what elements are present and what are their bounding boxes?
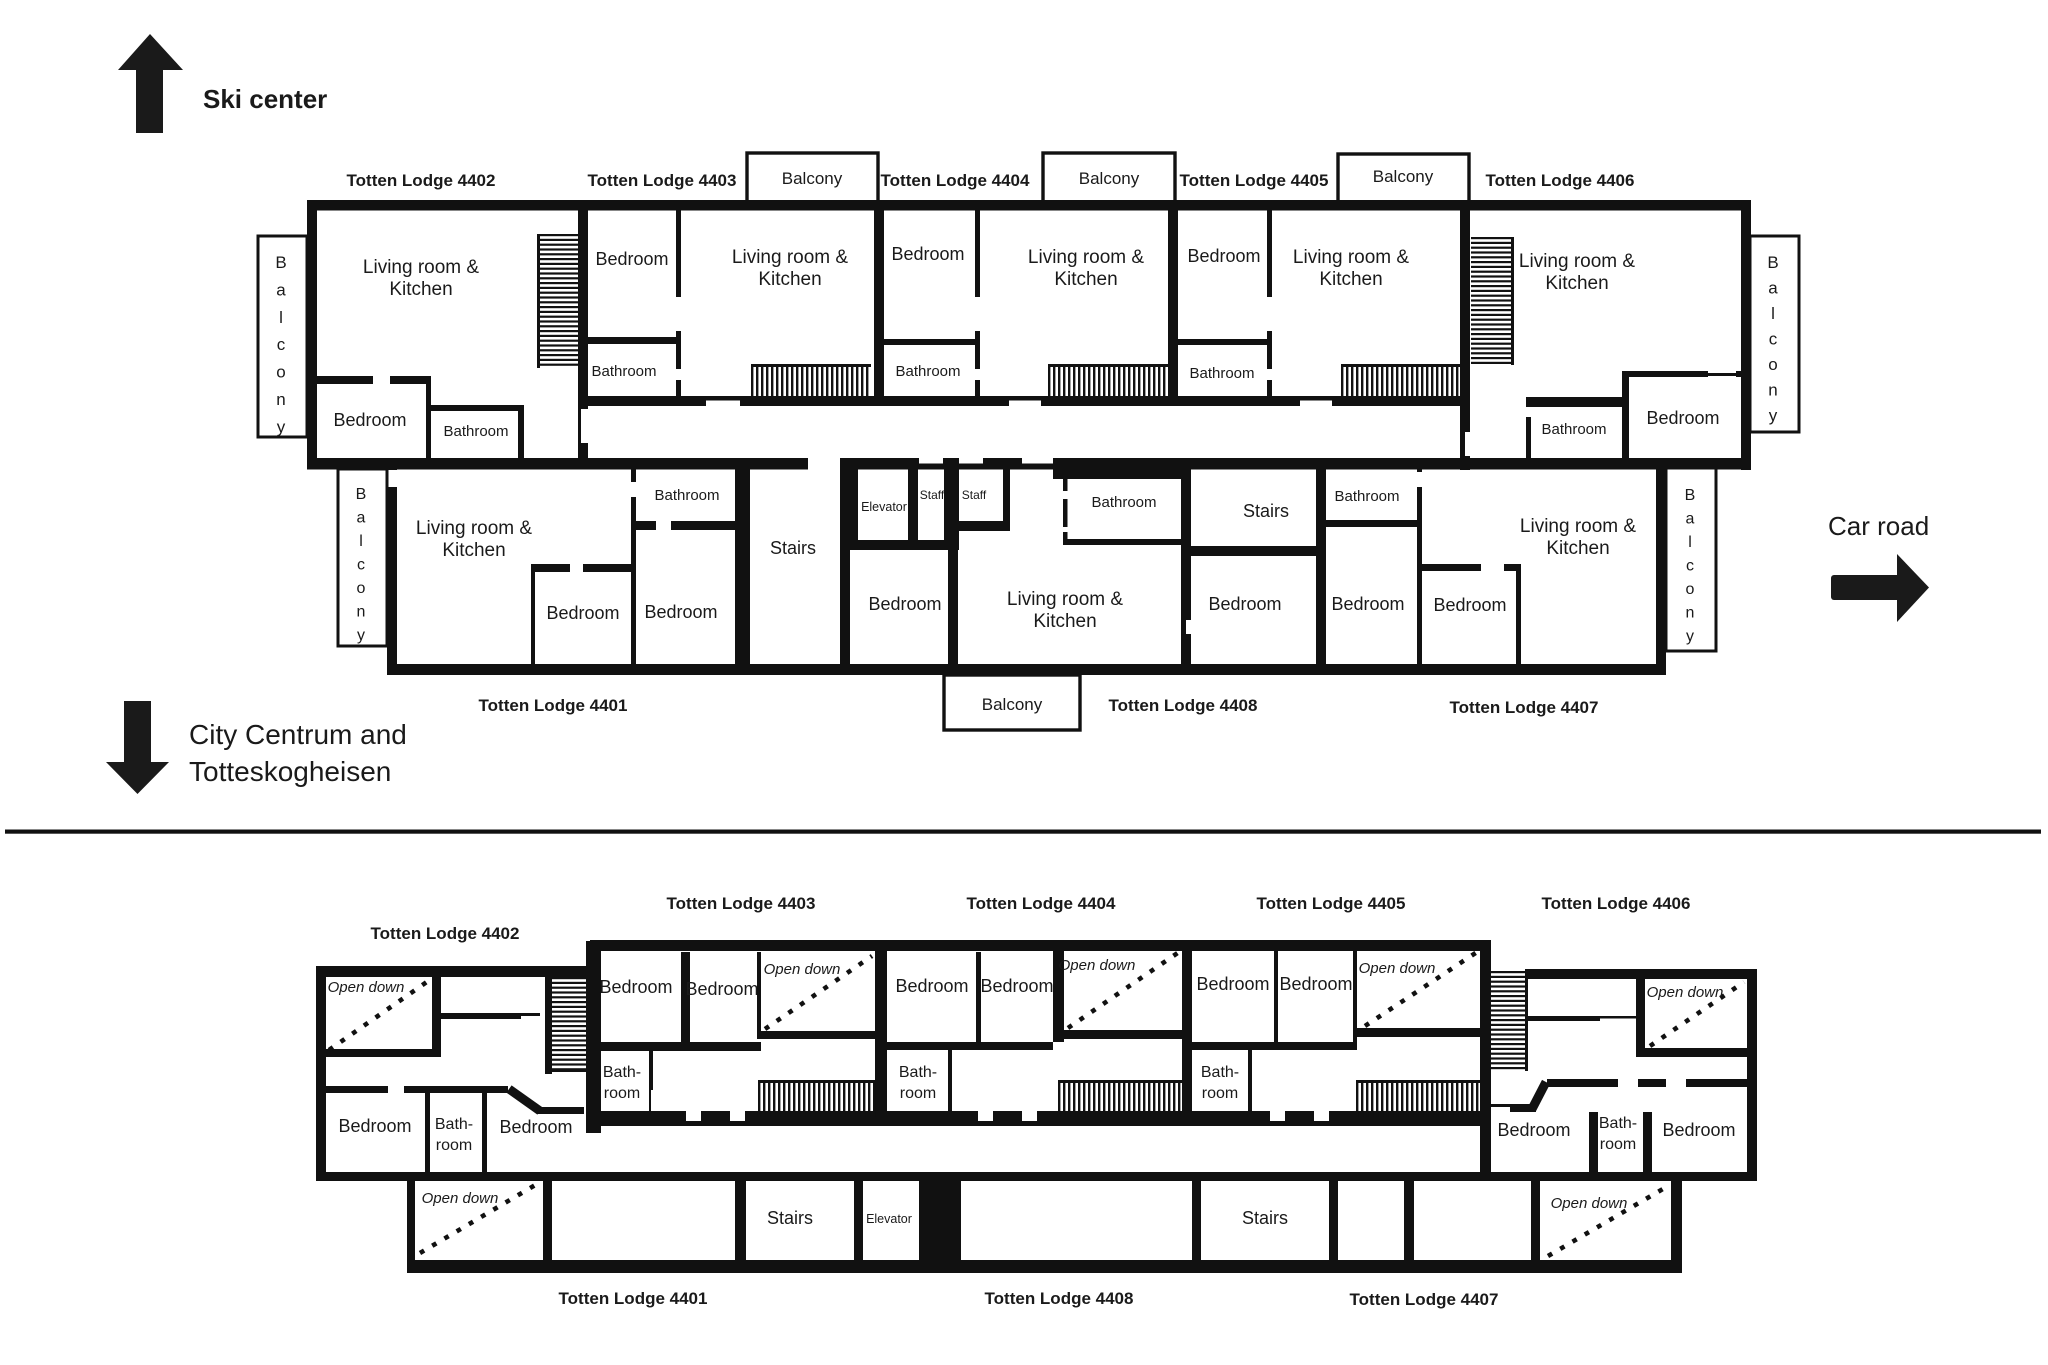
svg-text:Open down: Open down — [1551, 1195, 1628, 1212]
svg-text:o: o — [357, 580, 366, 597]
svg-text:n: n — [276, 390, 285, 409]
svg-text:n: n — [357, 604, 366, 621]
svg-text:Bedroom: Bedroom — [1208, 594, 1281, 614]
svg-text:B: B — [1767, 253, 1778, 272]
svg-text:Bath-: Bath- — [603, 1064, 641, 1081]
svg-text:y: y — [357, 627, 365, 644]
svg-text:Totten Lodge 4408: Totten Lodge 4408 — [985, 1289, 1134, 1308]
svg-text:Kitchen: Kitchen — [1545, 273, 1608, 294]
svg-text:Bedroom: Bedroom — [1646, 408, 1719, 428]
svg-text:Bathroom: Bathroom — [1189, 365, 1254, 382]
svg-text:Totten Lodge 4404: Totten Lodge 4404 — [967, 894, 1116, 913]
svg-text:Bedroom: Bedroom — [338, 1116, 411, 1136]
svg-text:y: y — [1686, 628, 1694, 645]
svg-text:B: B — [1685, 487, 1696, 504]
svg-text:Stairs: Stairs — [1243, 501, 1289, 521]
svg-text:Bedroom: Bedroom — [1187, 246, 1260, 266]
svg-text:Totten Lodge 4402: Totten Lodge 4402 — [347, 171, 496, 190]
svg-text:Bathroom: Bathroom — [1091, 494, 1156, 511]
svg-text:Bathroom: Bathroom — [1541, 421, 1606, 438]
svg-text:Totten Lodge 4403: Totten Lodge 4403 — [588, 171, 737, 190]
svg-text:Elevator: Elevator — [861, 500, 907, 514]
svg-text:Balcony: Balcony — [1373, 167, 1434, 186]
svg-text:Kitchen: Kitchen — [1546, 538, 1609, 559]
svg-text:Bedroom: Bedroom — [1433, 595, 1506, 615]
svg-text:Bedroom: Bedroom — [1196, 974, 1269, 994]
svg-text:Living room &: Living room & — [1519, 251, 1635, 272]
svg-text:room: room — [900, 1085, 936, 1102]
svg-text:Staff: Staff — [920, 488, 945, 502]
svg-text:room: room — [1600, 1136, 1636, 1153]
svg-text:a: a — [357, 510, 366, 527]
svg-text:Bedroom: Bedroom — [499, 1117, 572, 1137]
svg-text:Totten Lodge 4407: Totten Lodge 4407 — [1450, 698, 1599, 717]
svg-text:Kitchen: Kitchen — [1319, 269, 1382, 290]
svg-text:Stairs: Stairs — [1242, 1208, 1288, 1228]
svg-text:Kitchen: Kitchen — [389, 279, 452, 300]
svg-text:y: y — [1769, 406, 1778, 425]
svg-text:Bedroom: Bedroom — [1662, 1120, 1735, 1140]
svg-text:Living room &: Living room & — [1007, 589, 1123, 610]
svg-text:c: c — [277, 335, 286, 354]
svg-text:l: l — [1688, 534, 1692, 551]
svg-text:Ski center: Ski center — [203, 84, 327, 114]
svg-text:o: o — [1768, 355, 1777, 374]
svg-text:Totten Lodge 4405: Totten Lodge 4405 — [1180, 171, 1329, 190]
svg-text:Open down: Open down — [422, 1190, 499, 1207]
svg-text:l: l — [279, 308, 283, 327]
svg-text:Bath-: Bath- — [435, 1116, 473, 1133]
svg-text:Bedroom: Bedroom — [868, 594, 941, 614]
svg-text:o: o — [276, 363, 285, 382]
svg-text:Totten Lodge 4403: Totten Lodge 4403 — [667, 894, 816, 913]
svg-text:y: y — [277, 417, 286, 436]
svg-text:n: n — [1768, 381, 1777, 400]
svg-text:Bedroom: Bedroom — [644, 602, 717, 622]
svg-text:Stairs: Stairs — [770, 538, 816, 558]
svg-text:o: o — [1686, 581, 1695, 598]
svg-text:c: c — [357, 557, 365, 574]
svg-text:B: B — [356, 486, 367, 503]
svg-text:Open down: Open down — [1359, 960, 1436, 977]
svg-text:Living room &: Living room & — [1520, 516, 1636, 537]
svg-text:Living room &: Living room & — [416, 518, 532, 539]
svg-text:Bath-: Bath- — [899, 1064, 937, 1081]
svg-text:Living room &: Living room & — [1028, 247, 1144, 268]
svg-text:Kitchen: Kitchen — [758, 269, 821, 290]
svg-text:l: l — [359, 533, 363, 550]
svg-text:Kitchen: Kitchen — [1054, 269, 1117, 290]
svg-text:Bathroom: Bathroom — [591, 363, 656, 380]
svg-text:a: a — [1686, 511, 1695, 528]
svg-text:Stairs: Stairs — [767, 1208, 813, 1228]
svg-text:Balcony: Balcony — [982, 695, 1043, 714]
svg-text:Open down: Open down — [1059, 957, 1136, 974]
svg-text:Bedroom: Bedroom — [1331, 594, 1404, 614]
svg-text:c: c — [1686, 558, 1694, 575]
svg-text:Car road: Car road — [1828, 511, 1929, 541]
svg-text:Bath-: Bath- — [1201, 1064, 1239, 1081]
svg-text:Bedroom: Bedroom — [599, 977, 672, 997]
svg-text:room: room — [604, 1085, 640, 1102]
svg-text:Living room &: Living room & — [732, 247, 848, 268]
svg-text:B: B — [275, 253, 286, 272]
svg-text:Elevator: Elevator — [866, 1212, 912, 1226]
svg-text:Bedroom: Bedroom — [595, 249, 668, 269]
svg-text:Totteskogheisen: Totteskogheisen — [189, 756, 391, 787]
svg-text:room: room — [1202, 1085, 1238, 1102]
svg-text:Bedroom: Bedroom — [895, 976, 968, 996]
svg-text:Staff: Staff — [962, 488, 987, 502]
svg-text:c: c — [1769, 330, 1778, 349]
svg-text:l: l — [1771, 304, 1775, 323]
svg-text:n: n — [1686, 605, 1695, 622]
svg-text:Totten Lodge 4401: Totten Lodge 4401 — [559, 1289, 708, 1308]
svg-text:Totten Lodge 4401: Totten Lodge 4401 — [479, 696, 628, 715]
svg-text:Bedroom: Bedroom — [980, 976, 1053, 996]
svg-text:room: room — [436, 1137, 472, 1154]
svg-text:Bathroom: Bathroom — [1334, 488, 1399, 505]
svg-text:Bedroom: Bedroom — [1497, 1120, 1570, 1140]
svg-text:a: a — [276, 280, 286, 299]
svg-text:City Centrum and: City Centrum and — [189, 719, 407, 750]
svg-text:Open down: Open down — [1647, 984, 1724, 1001]
svg-text:Bathroom: Bathroom — [654, 487, 719, 504]
svg-text:Bathroom: Bathroom — [895, 363, 960, 380]
svg-text:Totten Lodge 4406: Totten Lodge 4406 — [1486, 171, 1635, 190]
svg-text:Living room &: Living room & — [1293, 247, 1409, 268]
svg-text:Bedroom: Bedroom — [1279, 974, 1352, 994]
svg-text:Bedroom: Bedroom — [891, 244, 964, 264]
svg-text:Bedroom: Bedroom — [333, 410, 406, 430]
svg-text:Living room &: Living room & — [363, 257, 479, 278]
svg-text:Bath-: Bath- — [1599, 1115, 1637, 1132]
svg-text:Totten Lodge 4404: Totten Lodge 4404 — [881, 171, 1030, 190]
svg-text:Open down: Open down — [328, 979, 405, 996]
svg-text:Kitchen: Kitchen — [442, 540, 505, 561]
svg-text:Totten Lodge 4402: Totten Lodge 4402 — [371, 924, 520, 943]
svg-text:Bathroom: Bathroom — [443, 423, 508, 440]
svg-text:Balcony: Balcony — [782, 169, 843, 188]
svg-text:Balcony: Balcony — [1079, 169, 1140, 188]
svg-text:Totten Lodge 4405: Totten Lodge 4405 — [1257, 894, 1406, 913]
svg-text:Bedroom: Bedroom — [546, 603, 619, 623]
svg-text:Totten Lodge 4408: Totten Lodge 4408 — [1109, 696, 1258, 715]
svg-text:Bedroom: Bedroom — [685, 979, 758, 999]
svg-text:Open down: Open down — [764, 961, 841, 978]
svg-text:Kitchen: Kitchen — [1033, 611, 1096, 632]
svg-text:Totten Lodge 4406: Totten Lodge 4406 — [1542, 894, 1691, 913]
svg-text:Totten Lodge 4407: Totten Lodge 4407 — [1350, 1290, 1499, 1309]
svg-text:a: a — [1768, 279, 1778, 298]
